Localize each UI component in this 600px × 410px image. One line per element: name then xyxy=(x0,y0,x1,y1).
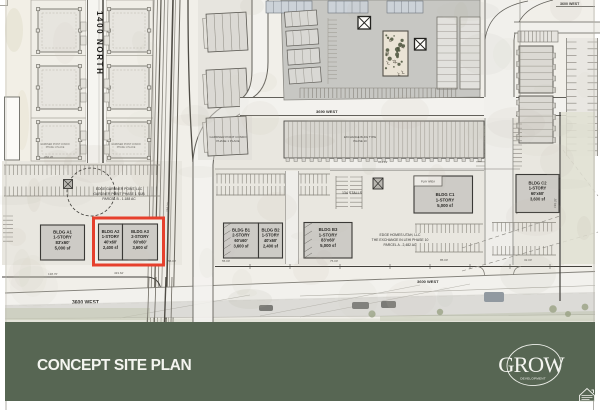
svg-text:EDGE GARDNER POINT, LLC: EDGE GARDNER POINT, LLC xyxy=(96,187,143,191)
svg-text:BLDG B2: BLDG B2 xyxy=(262,227,281,232)
svg-text:PHASE 10: PHASE 10 xyxy=(353,139,367,143)
svg-text:BLDG A3: BLDG A3 xyxy=(131,229,150,234)
svg-text:5,000 sf: 5,000 sf xyxy=(320,243,336,248)
svg-text:3,600 sf: 3,600 sf xyxy=(132,245,148,250)
svg-text:BLDG A1: BLDG A1 xyxy=(53,229,72,234)
svg-text:1-STORY: 1-STORY xyxy=(102,234,120,239)
svg-text:2-STORY: 2-STORY xyxy=(131,234,149,239)
svg-text:85.00': 85.00' xyxy=(440,258,449,262)
svg-text:BLDG A2: BLDG A2 xyxy=(102,229,121,234)
svg-text:60'x60': 60'x60' xyxy=(234,238,247,243)
svg-text:60'x60': 60'x60' xyxy=(531,191,544,196)
svg-text:83'x60': 83'x60' xyxy=(56,240,70,245)
svg-text:3690 WEST: 3690 WEST xyxy=(316,109,338,114)
svg-text:60'x60': 60'x60' xyxy=(133,239,146,244)
svg-text:1-STORY: 1-STORY xyxy=(53,235,72,240)
svg-text:2-STORY: 2-STORY xyxy=(232,233,250,238)
svg-text:DEVELOPMENT: DEVELOPMENT xyxy=(520,377,546,381)
svg-text:2,400 sf: 2,400 sf xyxy=(263,243,279,248)
svg-text:2,400 sf: 2,400 sf xyxy=(103,245,119,250)
svg-text:PHASE 1 PLACE: PHASE 1 PLACE xyxy=(46,146,65,149)
svg-text:5,000 sf: 5,000 sf xyxy=(437,203,453,208)
svg-text:5,000 sf: 5,000 sf xyxy=(55,245,71,250)
svg-text:40'x60': 40'x60' xyxy=(104,239,117,244)
svg-text:433.62': 433.62' xyxy=(114,271,124,275)
svg-text:1400 NORTH: 1400 NORTH xyxy=(95,11,104,75)
svg-text:1-STORY: 1-STORY xyxy=(436,198,455,203)
svg-text:953.19': 953.19' xyxy=(378,160,388,164)
svg-text:GARDNER POINT PHASE 1 SUB: GARDNER POINT PHASE 1 SUB xyxy=(93,192,145,196)
svg-text:EDGE HOMES UTAH, LLC: EDGE HOMES UTAH, LLC xyxy=(379,233,421,237)
svg-text:CONCEPT SITE PLAN: CONCEPT SITE PLAN xyxy=(37,357,191,374)
svg-text:PARCEL A - 2,482 AC: PARCEL A - 2,482 AC xyxy=(384,243,418,247)
svg-text:3,600 sf: 3,600 sf xyxy=(233,243,249,248)
svg-text:GROW: GROW xyxy=(498,352,565,377)
svg-text:BLDG B1: BLDG B1 xyxy=(232,227,251,232)
svg-text:134 STALLS: 134 STALLS xyxy=(342,191,363,195)
svg-text:PARCEL B - 1.188 AC: PARCEL B - 1.188 AC xyxy=(102,197,136,201)
svg-text:PHASE 1 PLACE: PHASE 1 PLACE xyxy=(216,139,239,143)
svg-text:1-STORY: 1-STORY xyxy=(262,233,280,238)
svg-text:40'x60': 40'x60' xyxy=(264,238,277,243)
svg-text:55.00': 55.00' xyxy=(168,259,177,263)
svg-text:PHASE 1 PLACE: PHASE 1 PLACE xyxy=(117,146,136,149)
svg-text:THE EXCHANGE IN LEHI PHASE 10: THE EXCHANGE IN LEHI PHASE 10 xyxy=(372,238,429,242)
